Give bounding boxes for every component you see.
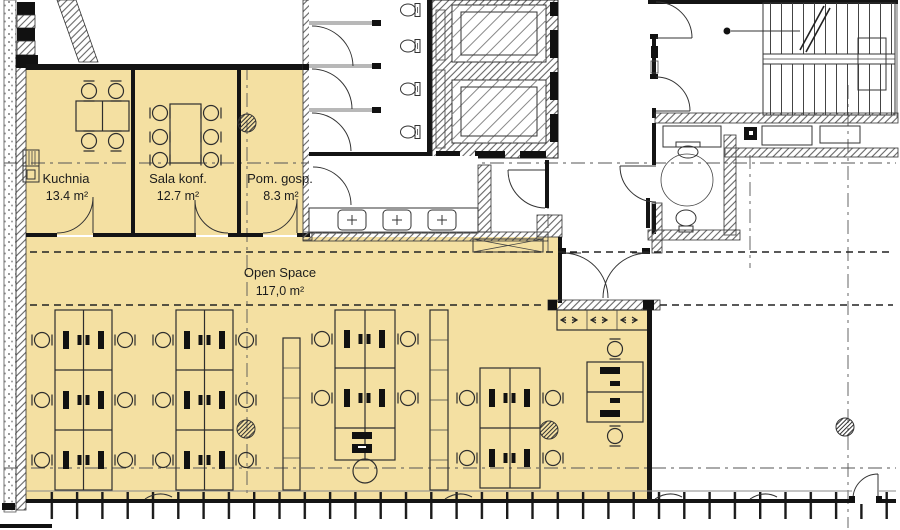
floor-plan-canvas: Kuchnia 13.4 m² Sala konf. 12.7 m² Pom. … [0, 0, 900, 530]
floor-plan: Kuchnia 13.4 m² Sala konf. 12.7 m² Pom. … [0, 0, 900, 530]
column-icon [237, 420, 255, 438]
room-label-open-space: Open Space [244, 265, 316, 280]
elevator-core [432, 0, 558, 158]
column-icon [540, 421, 558, 439]
stair-start-dot [724, 28, 731, 35]
column-icon [836, 418, 854, 436]
room-area-kuchnia: 13.4 m² [46, 189, 88, 203]
elevator-cabin [452, 80, 546, 143]
corridor-south-wall [303, 232, 548, 241]
rooms-highlight [26, 68, 303, 235]
room-area-sala-konf: 12.7 m² [157, 189, 199, 203]
room-label-sala-konf: Sala konf. [149, 171, 207, 186]
column-icon [238, 114, 256, 132]
room-area-open-space: 117,0 m² [256, 284, 304, 298]
room-label-pom-gosp: Pom. gosp. [247, 171, 313, 186]
elevator-cabin [452, 5, 546, 62]
room-area-pom-gosp: 8.3 m² [263, 189, 298, 203]
toilet-block [309, 0, 432, 158]
open-space-east-wall [647, 308, 652, 500]
room-label-kuchnia: Kuchnia [43, 171, 91, 186]
